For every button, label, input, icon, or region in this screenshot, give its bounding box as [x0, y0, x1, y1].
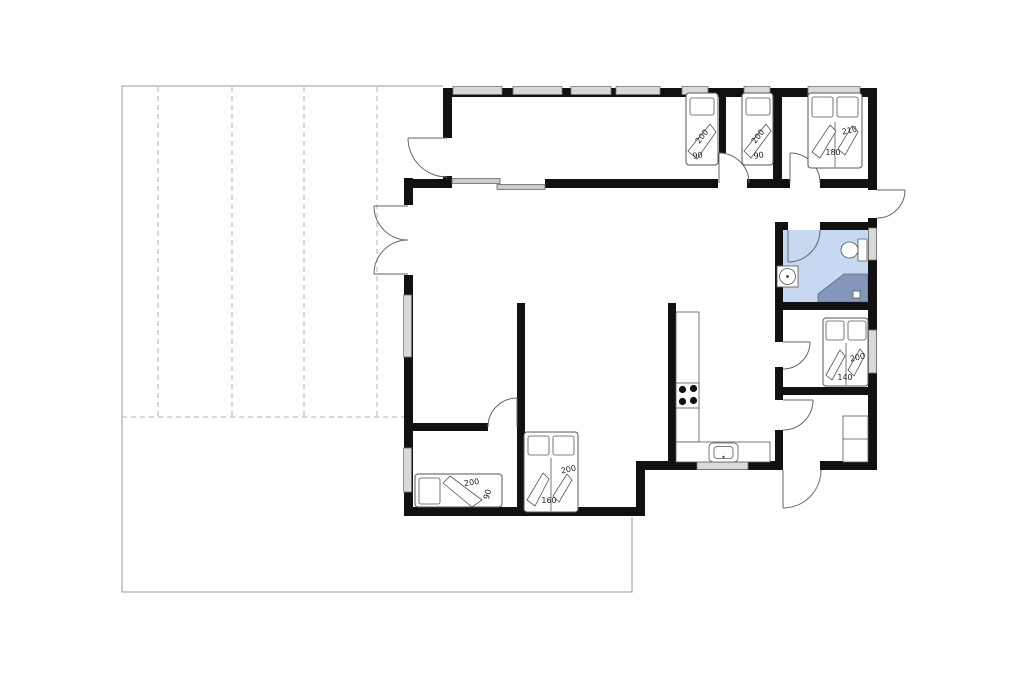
window-bathroom	[869, 228, 877, 260]
dimension-label: 90	[692, 150, 703, 160]
window-top-1	[453, 87, 502, 95]
floor-drain-icon	[777, 266, 798, 287]
stove-icon	[676, 383, 699, 408]
door-french-left	[374, 206, 408, 274]
dimension-label: 90	[753, 150, 764, 160]
door-small-bedroom	[488, 398, 517, 427]
window-kitchen	[697, 462, 748, 470]
sliding-door	[452, 179, 545, 190]
sink-icon	[709, 443, 738, 462]
window-bedroom4	[869, 330, 877, 373]
kitchen	[676, 312, 770, 462]
shower-drain	[853, 291, 860, 298]
terrace-outline	[122, 86, 632, 592]
dimension-label: 180	[825, 148, 840, 157]
door-annex-terrace	[408, 138, 447, 177]
door-main-entrance	[783, 470, 821, 508]
window-top-2	[513, 87, 562, 95]
door-bedroom4	[783, 342, 810, 369]
floor-plan: 200 90 200 90 210 180 200 140 200 160 20…	[0, 0, 1024, 682]
floor-plan-canvas: 200 90 200 90 210 180 200 140 200 160 20…	[0, 0, 1024, 682]
dimension-label: 160	[541, 496, 556, 505]
door-kitchen-entry	[783, 400, 813, 430]
window-top-3	[571, 87, 611, 95]
window-top-4	[616, 87, 660, 95]
dimension-label: 140	[837, 373, 852, 382]
window-living-left	[404, 295, 412, 357]
window-small-bedroom	[404, 448, 412, 492]
kitchen-counter-side	[676, 312, 699, 442]
interior-walls	[404, 97, 877, 516]
wardrobe	[843, 416, 868, 462]
door-side-entrance	[877, 190, 905, 218]
